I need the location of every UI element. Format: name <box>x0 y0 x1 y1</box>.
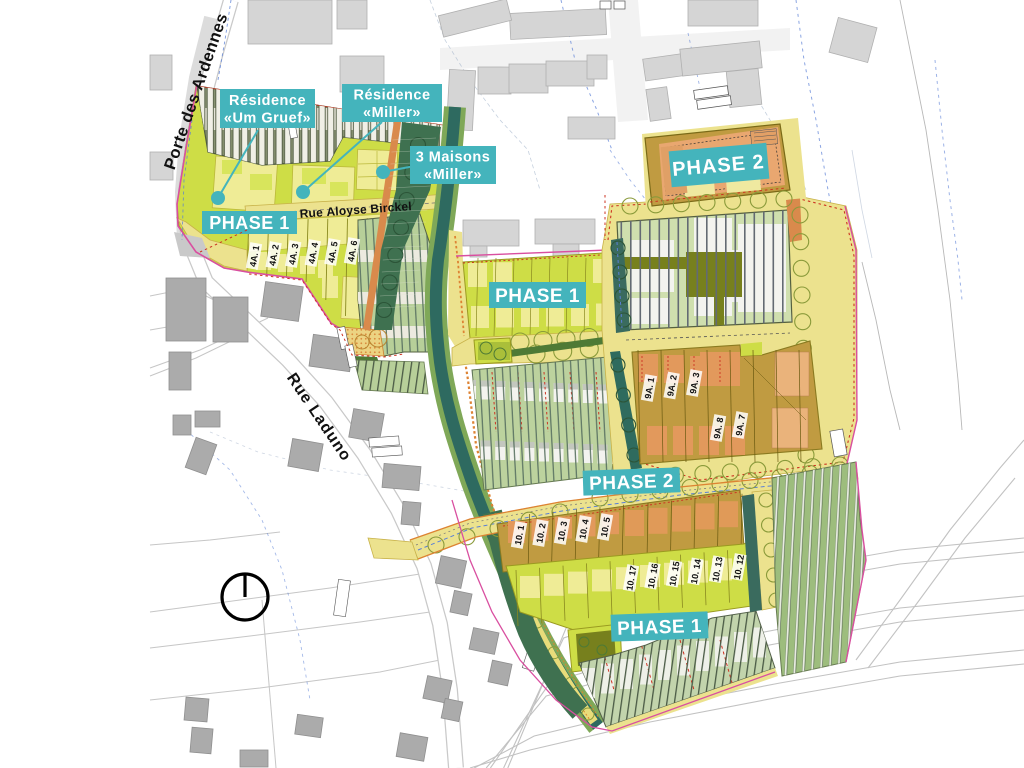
svg-text:«Um Gruef»: «Um Gruef» <box>224 110 311 126</box>
svg-text:PHASE 2: PHASE 2 <box>589 471 674 495</box>
svg-text:Résidence: Résidence <box>229 93 306 109</box>
svg-text:PHASE 1: PHASE 1 <box>209 213 290 233</box>
svg-text:3 Maisons: 3 Maisons <box>416 150 491 166</box>
svg-text:PHASE 1: PHASE 1 <box>495 286 580 307</box>
svg-text:«Miller»: «Miller» <box>424 167 482 183</box>
svg-text:Résidence: Résidence <box>353 88 430 104</box>
svg-text:«Miller»: «Miller» <box>363 105 421 121</box>
svg-text:PHASE 1: PHASE 1 <box>617 616 702 640</box>
